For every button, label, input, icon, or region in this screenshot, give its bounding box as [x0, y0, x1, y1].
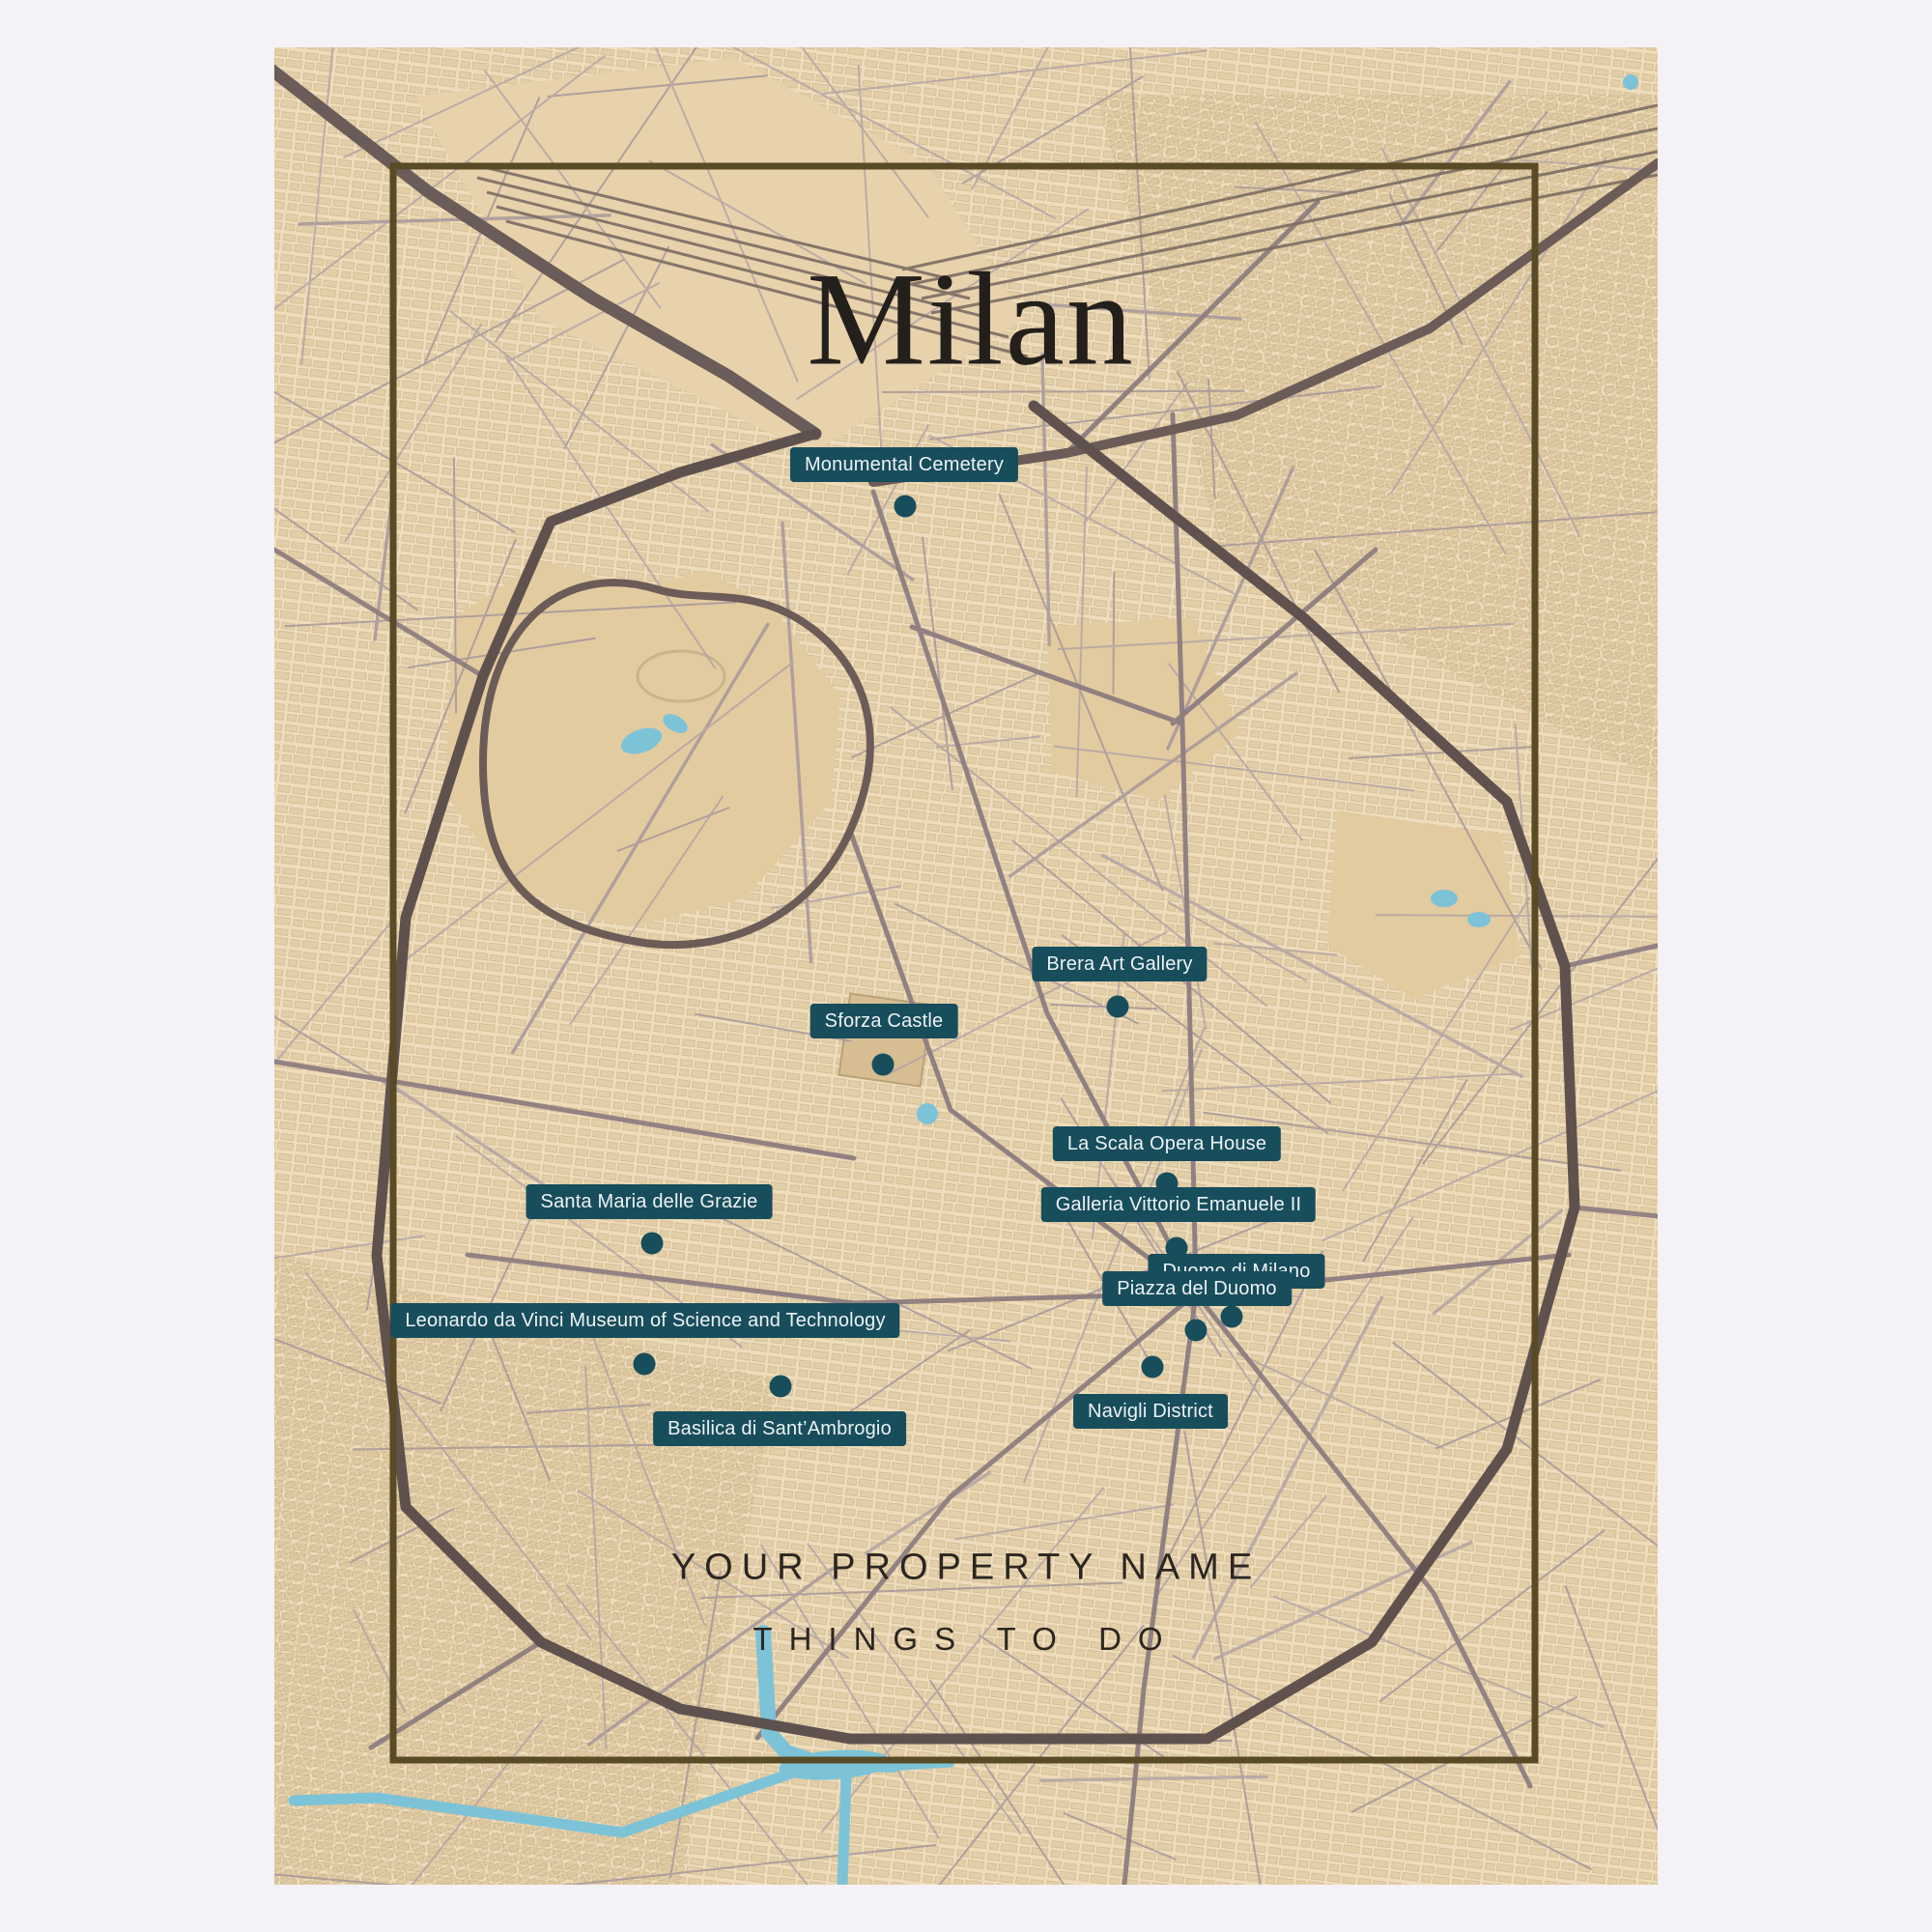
- poi-dot: [1142, 1356, 1164, 1378]
- poi-label: Basilica di Sant’Ambrogio: [653, 1411, 906, 1446]
- poi-dot: [872, 1054, 895, 1076]
- property-name-text: YOUR PROPERTY NAME: [671, 1548, 1261, 1589]
- poi-label: La Scala Opera House: [1053, 1126, 1281, 1161]
- poi-dot: [1221, 1306, 1243, 1328]
- poi-label: Leonardo da Vinci Museum of Science and …: [390, 1303, 899, 1338]
- poi-dot: [895, 496, 917, 518]
- city-title: Milan: [807, 242, 1135, 396]
- poi-dot: [634, 1353, 656, 1376]
- poi-label: Sforza Castle: [810, 1004, 958, 1038]
- poi-dot: [641, 1233, 664, 1255]
- poi-dot: [770, 1376, 792, 1398]
- poi-label: Santa Maria delle Grazie: [526, 1184, 773, 1219]
- poi-label: Galleria Vittorio Emanuele II: [1041, 1187, 1316, 1222]
- poi-label: Piazza del Duomo: [1102, 1271, 1292, 1306]
- milan-map-poster: Milan Monumental CemeteryBrera Art Galle…: [0, 0, 1932, 1932]
- map-canvas: Milan Monumental CemeteryBrera Art Galle…: [274, 47, 1658, 1885]
- poi-label: Navigli District: [1073, 1394, 1228, 1429]
- poi-dot: [1107, 996, 1129, 1018]
- poi-dot: [1185, 1320, 1207, 1342]
- poi-label: Brera Art Gallery: [1032, 947, 1207, 981]
- things-to-do-text: THINGS TO DO: [753, 1621, 1179, 1658]
- poi-label: Monumental Cemetery: [790, 447, 1018, 482]
